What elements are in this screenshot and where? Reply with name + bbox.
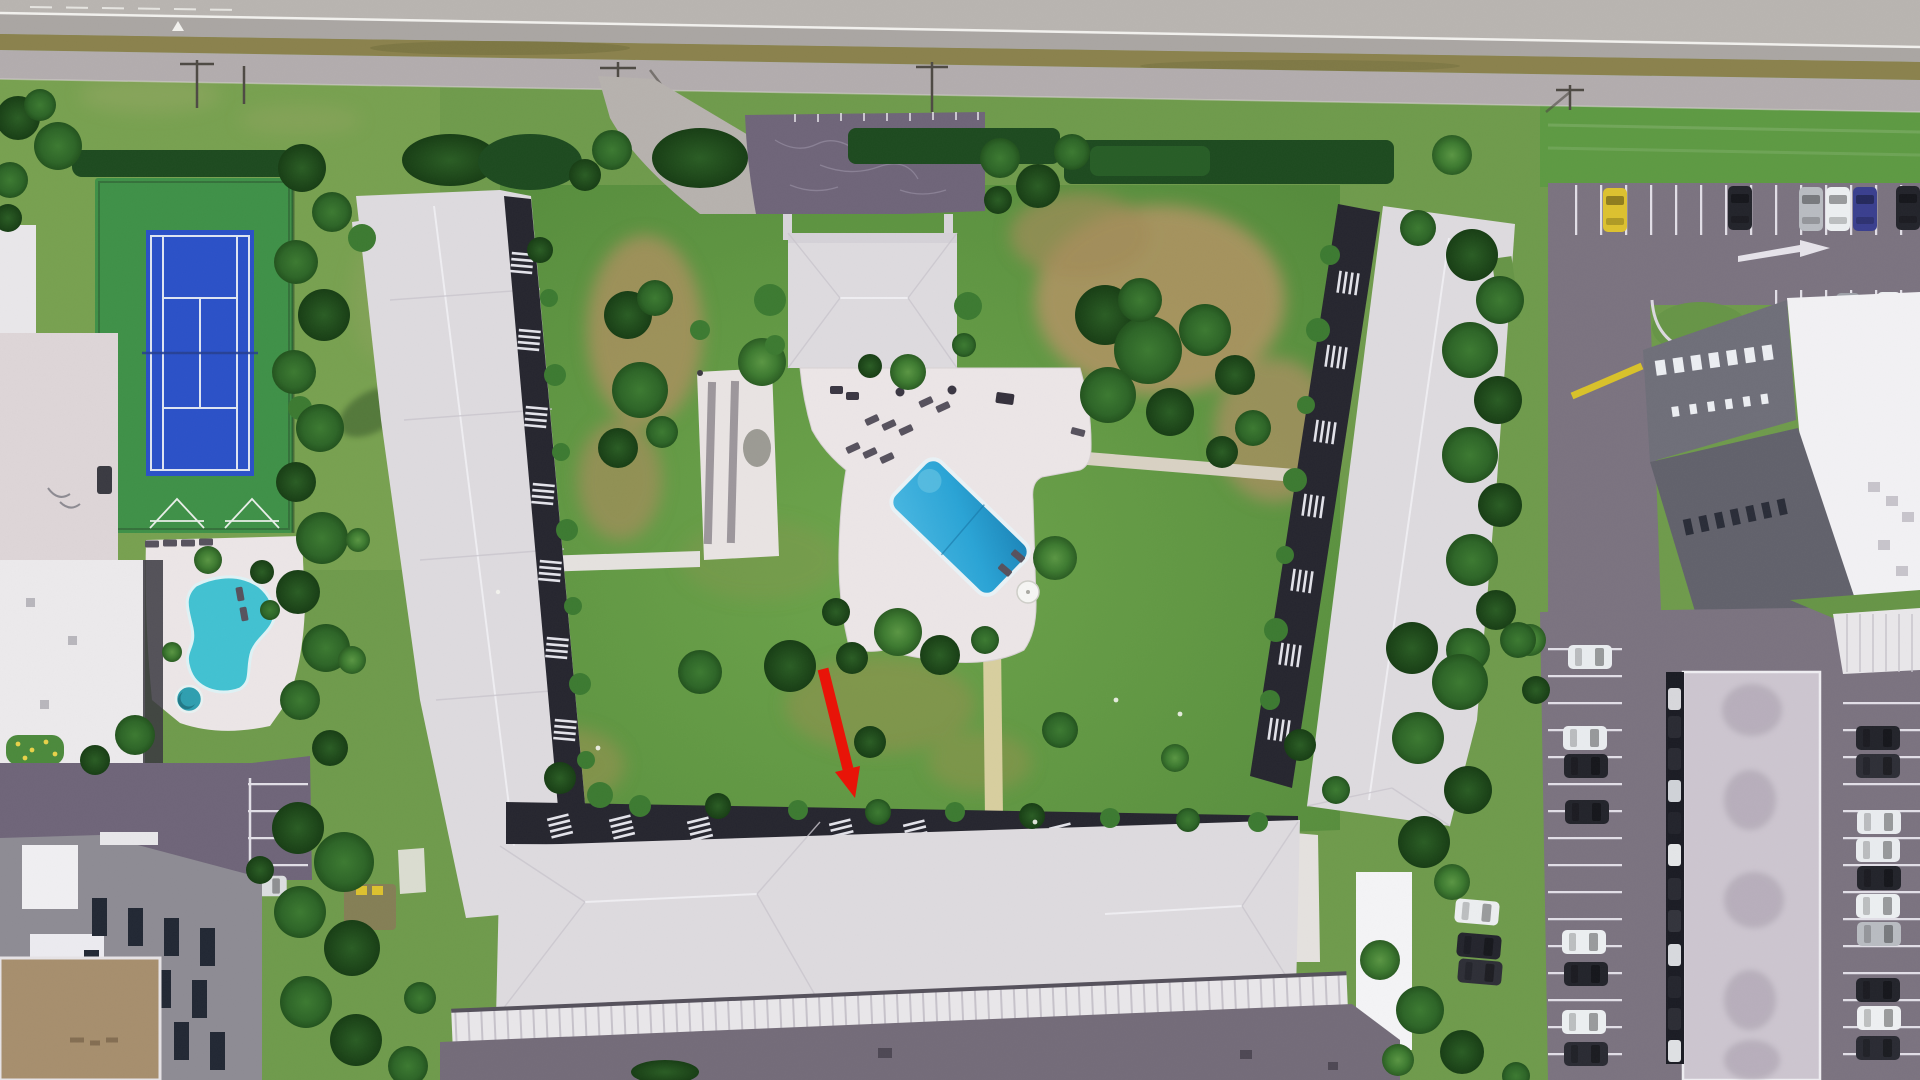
aerial-photo — [0, 0, 1920, 1080]
aerial-photo-stage — [0, 0, 1920, 1080]
photo-grain — [0, 0, 1920, 1080]
